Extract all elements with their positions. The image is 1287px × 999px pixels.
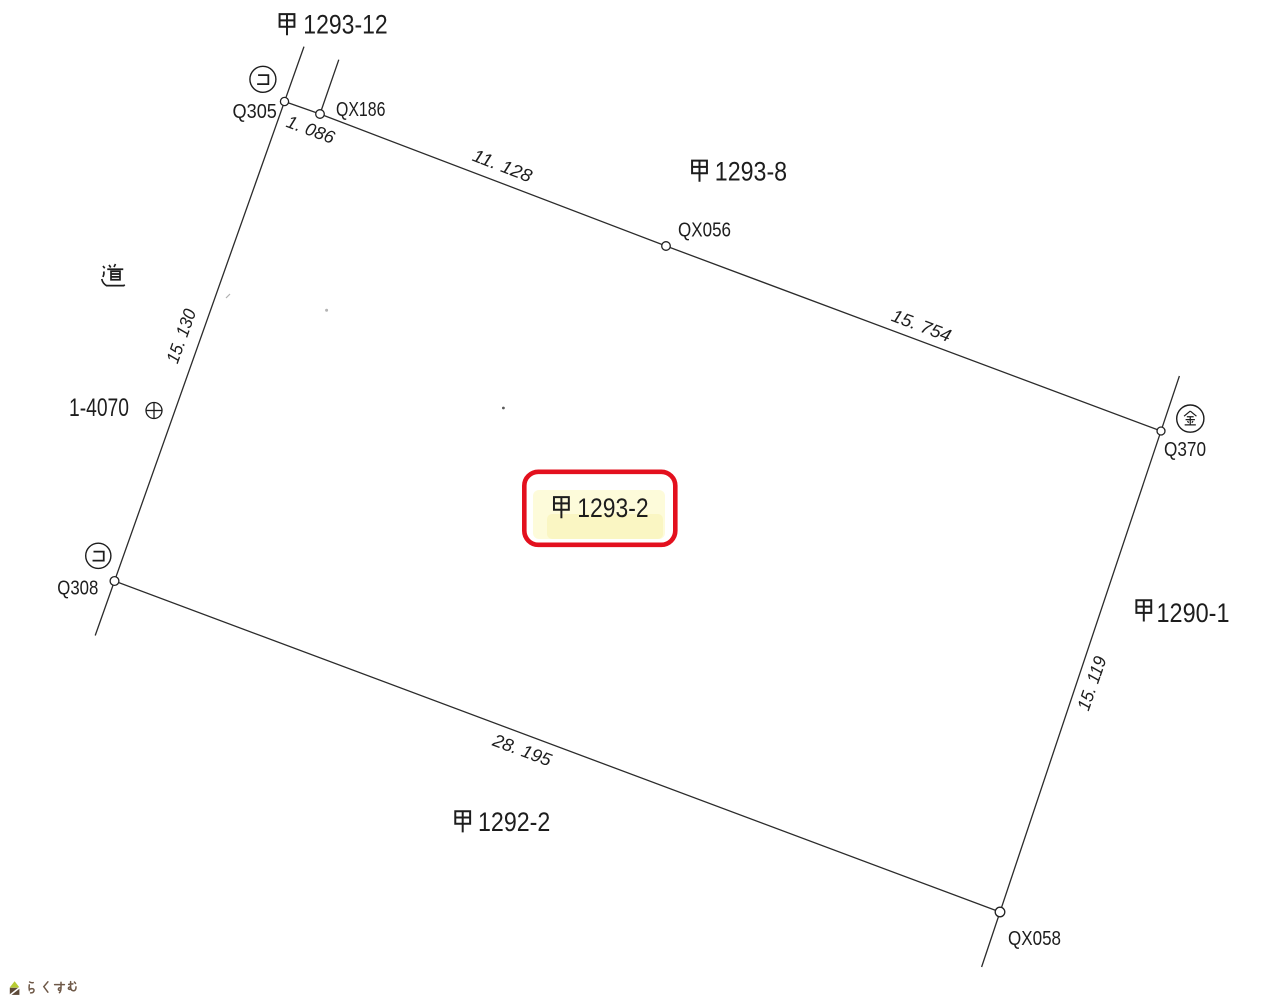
svg-text:Q308: Q308 <box>57 578 98 600</box>
svg-text:QX056: QX056 <box>678 220 731 242</box>
svg-text:Q305: Q305 <box>233 101 277 123</box>
svg-text:1293-2: 1293-2 <box>577 493 648 523</box>
svg-text:1293-8: 1293-8 <box>715 157 787 187</box>
svg-text:1293-12: 1293-12 <box>303 10 387 40</box>
svg-text:QX186: QX186 <box>336 99 385 121</box>
svg-text:1292-2: 1292-2 <box>478 807 550 837</box>
svg-text:1290-1: 1290-1 <box>1157 598 1230 628</box>
svg-text:Q370: Q370 <box>1164 439 1206 461</box>
svg-text:1-4070: 1-4070 <box>69 394 129 422</box>
svg-text:QX058: QX058 <box>1008 928 1061 950</box>
